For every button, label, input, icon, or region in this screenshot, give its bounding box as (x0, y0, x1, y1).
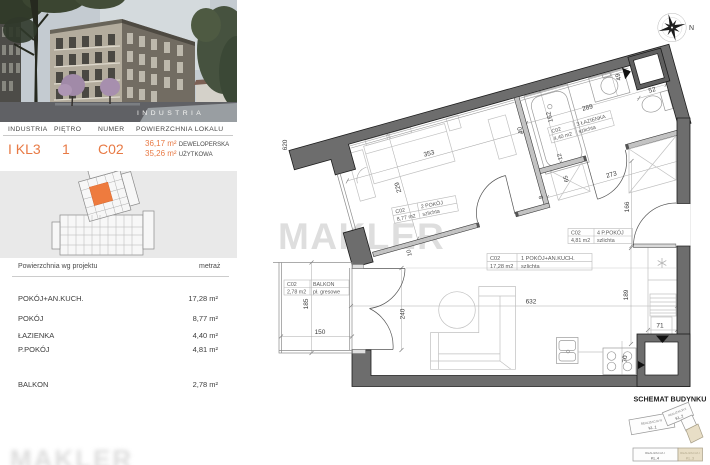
svg-text:BALKON: BALKON (313, 282, 335, 288)
svg-text:N: N (689, 25, 694, 32)
svg-text:REALIZACJA I: REALIZACJA I (645, 451, 665, 455)
svg-text:162: 162 (545, 110, 555, 123)
svg-text:INDUSTRIA: INDUSTRIA (137, 110, 204, 117)
svg-text:C02: C02 (571, 231, 581, 237)
svg-text:2 POKÓJ: 2 POKÓJ (420, 199, 444, 210)
svg-text:632: 632 (526, 299, 537, 306)
svg-text:C02: C02 (395, 208, 406, 216)
svg-text:71: 71 (656, 323, 664, 330)
svg-text:2,78 m2: 2,78 m2 (287, 290, 306, 296)
svg-text:289: 289 (581, 103, 594, 113)
svg-text:pł. gresowe: pł. gresowe (313, 290, 340, 296)
svg-text:4 P.POKÓJ: 4 P.POKÓJ (597, 230, 624, 237)
svg-text:17,28 m2: 17,28 m2 (490, 264, 513, 270)
svg-text:KL.4: KL.4 (651, 456, 660, 461)
svg-text:1 POKÓJ+AN.KUCH.: 1 POKÓJ+AN.KUCH. (521, 255, 575, 262)
svg-text:49: 49 (614, 72, 623, 81)
svg-text:189: 189 (623, 289, 630, 300)
svg-text:240: 240 (400, 308, 407, 319)
svg-text:SCHEMAT BUDYNKU: SCHEMAT BUDYNKU (634, 395, 707, 404)
svg-text:185: 185 (303, 298, 310, 309)
svg-text:4,81 m2: 4,81 m2 (571, 238, 590, 244)
svg-text:szlichta: szlichta (521, 264, 541, 270)
svg-text:REALIZACJA I: REALIZACJA I (680, 451, 700, 455)
svg-text:353: 353 (423, 149, 436, 159)
svg-text:C02: C02 (490, 256, 500, 262)
svg-text:KL.3: KL.3 (686, 456, 695, 461)
svg-text:szlichta: szlichta (597, 238, 615, 244)
svg-text:70: 70 (622, 355, 629, 363)
svg-text:C02: C02 (287, 282, 297, 288)
svg-text:620: 620 (282, 139, 289, 150)
svg-text:166: 166 (624, 201, 631, 212)
svg-text:65: 65 (563, 174, 571, 183)
svg-text:150: 150 (315, 329, 326, 336)
